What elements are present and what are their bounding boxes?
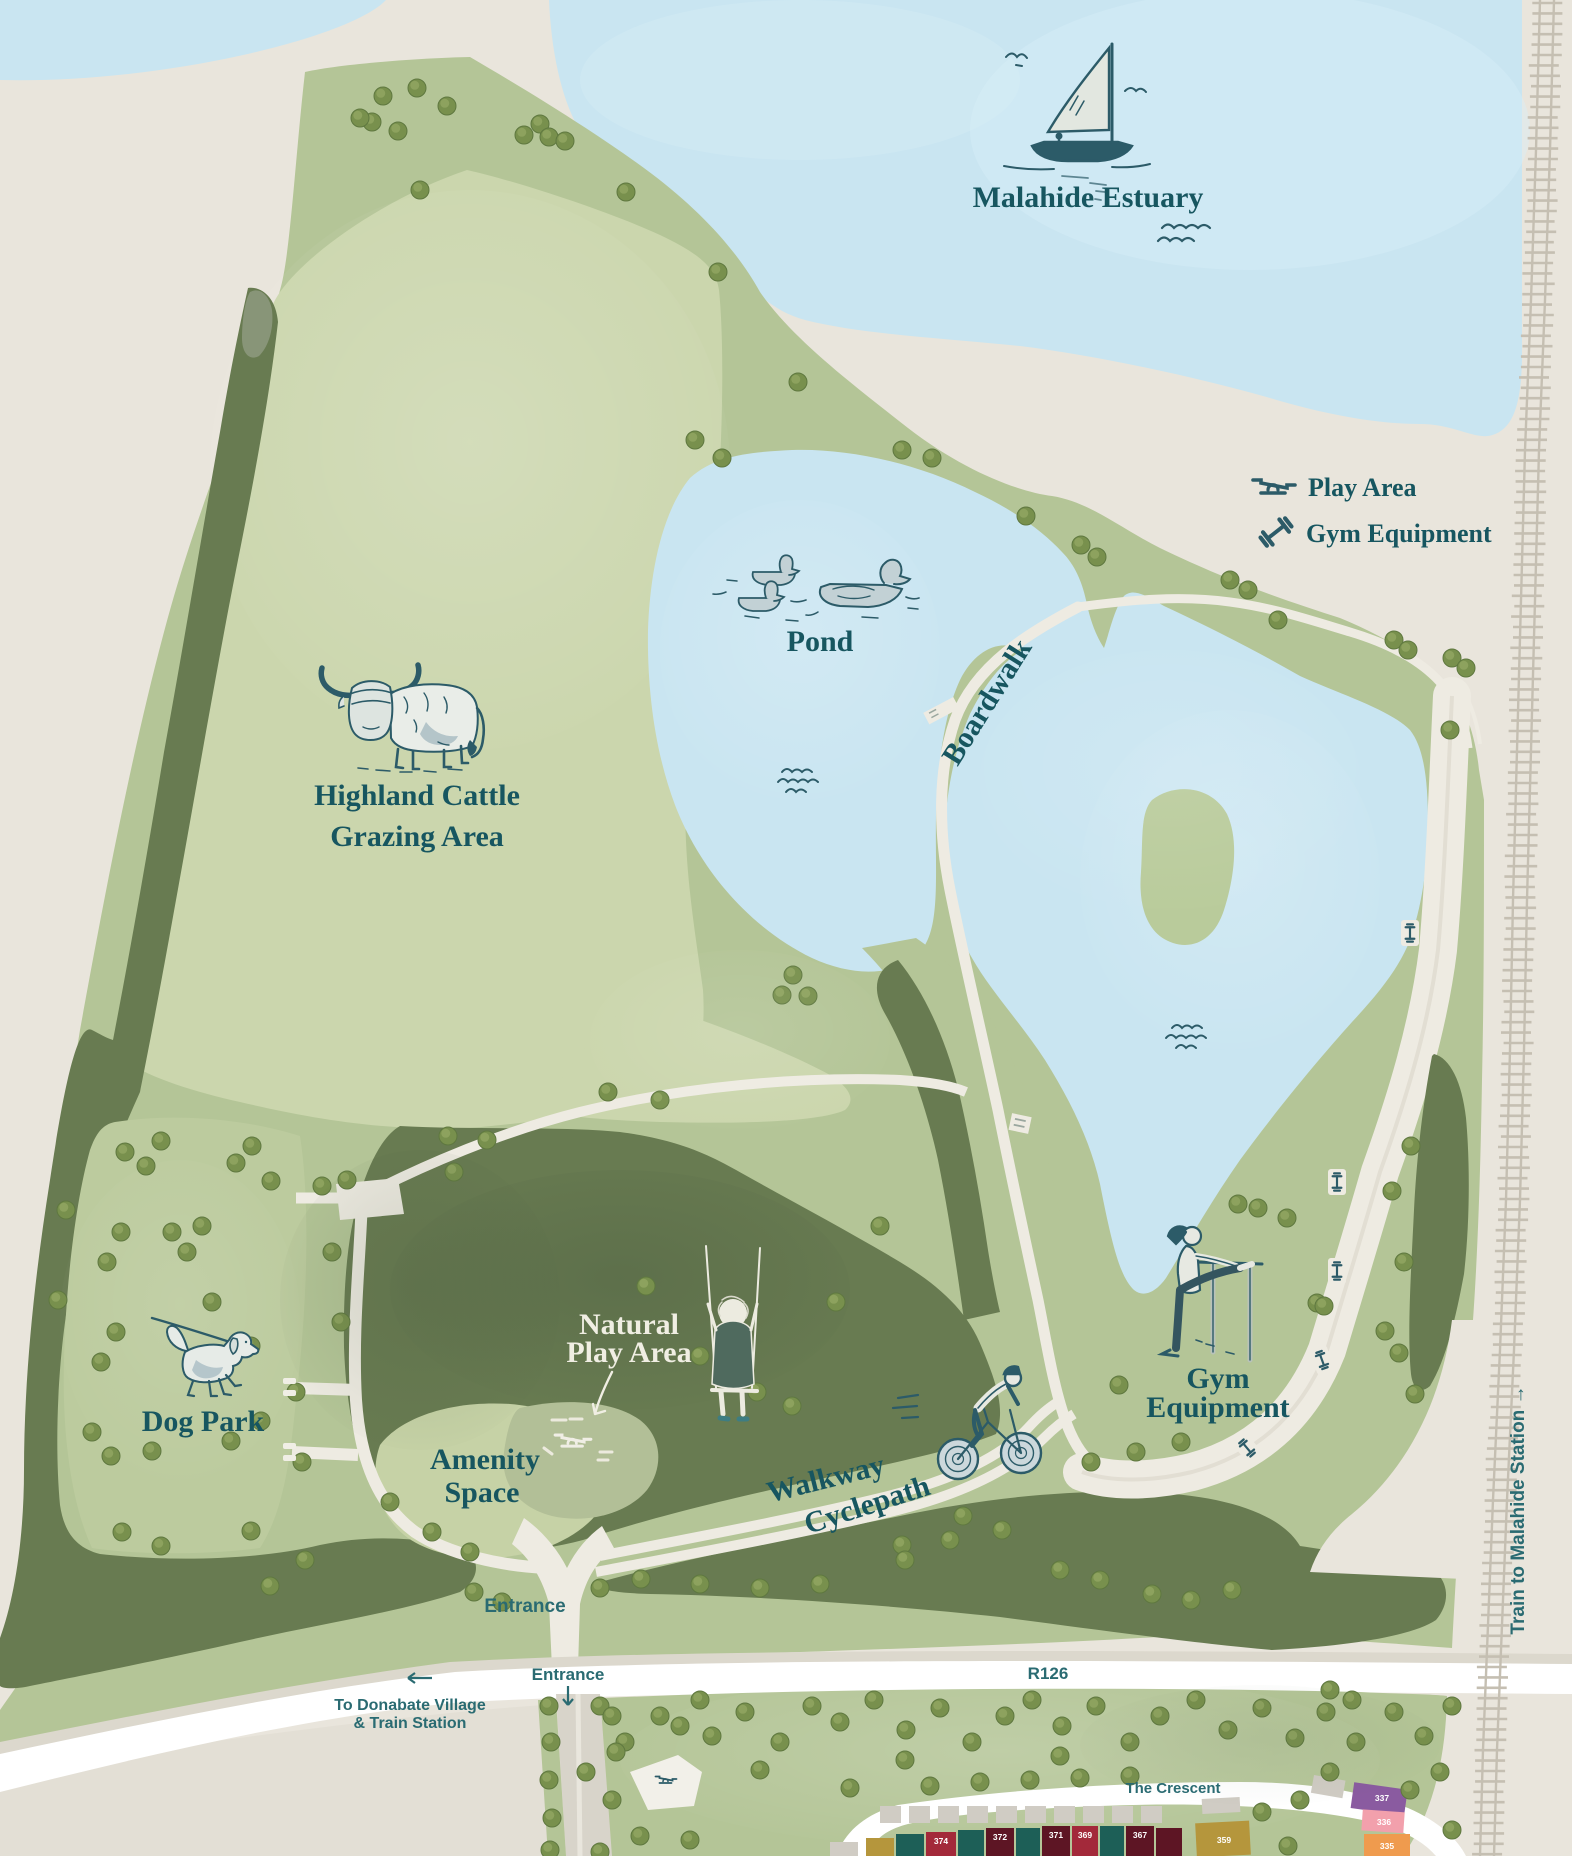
svg-text:Space: Space	[445, 1476, 520, 1509]
svg-text:& Train Station: & Train Station	[354, 1715, 467, 1732]
svg-text:Amenity: Amenity	[430, 1443, 540, 1476]
svg-text:Highland Cattle: Highland Cattle	[314, 779, 520, 812]
svg-text:Entrance: Entrance	[484, 1596, 565, 1617]
svg-text:Dog Park: Dog Park	[142, 1405, 265, 1438]
svg-text:374: 374	[934, 1836, 948, 1846]
svg-text:Equipment: Equipment	[1146, 1391, 1289, 1424]
svg-text:Gym Equipment: Gym Equipment	[1306, 519, 1492, 548]
svg-text:371: 371	[1049, 1830, 1063, 1840]
svg-text:Grazing Area: Grazing Area	[330, 820, 504, 853]
svg-text:Pond: Pond	[787, 625, 854, 658]
svg-text:359: 359	[1217, 1835, 1231, 1845]
svg-text:Play Area: Play Area	[566, 1336, 691, 1369]
svg-text:Play Area: Play Area	[1308, 473, 1417, 502]
svg-text:Train to Malahide Station →: Train to Malahide Station →	[1508, 1385, 1529, 1634]
svg-text:Malahide Estuary: Malahide Estuary	[973, 181, 1204, 214]
svg-text:367: 367	[1133, 1830, 1147, 1840]
svg-text:336: 336	[1377, 1817, 1391, 1827]
svg-text:372: 372	[993, 1832, 1007, 1842]
svg-text:337: 337	[1375, 1793, 1389, 1803]
svg-text:To Donabate Village: To Donabate Village	[334, 1697, 486, 1714]
svg-text:The Crescent: The Crescent	[1125, 1780, 1220, 1797]
svg-text:369: 369	[1078, 1830, 1092, 1840]
svg-text:335: 335	[1380, 1841, 1394, 1851]
svg-text:R126: R126	[1028, 1664, 1069, 1683]
svg-text:Entrance: Entrance	[532, 1665, 605, 1684]
